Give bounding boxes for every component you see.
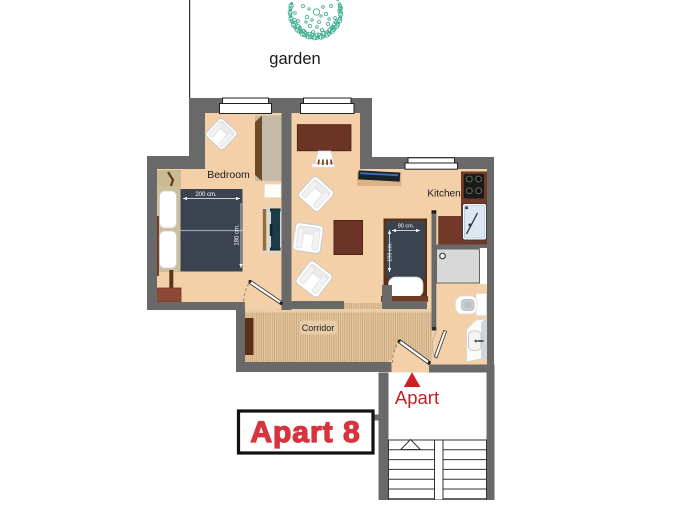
svg-text:Kitchen: Kitchen [427,189,460,200]
svg-text:Bedroom: Bedroom [207,169,250,181]
svg-text:90 cm.: 90 cm. [398,224,415,230]
svg-text:garden: garden [269,50,320,68]
svg-text:Apart: Apart [395,387,439,408]
svg-text:200 cm.: 200 cm. [195,192,217,198]
svg-text:190 cm.: 190 cm. [388,242,394,262]
svg-text:180 cm.: 180 cm. [235,224,241,246]
svg-text:Apart 8: Apart 8 [250,416,360,449]
svg-text:Corridor: Corridor [302,323,335,333]
